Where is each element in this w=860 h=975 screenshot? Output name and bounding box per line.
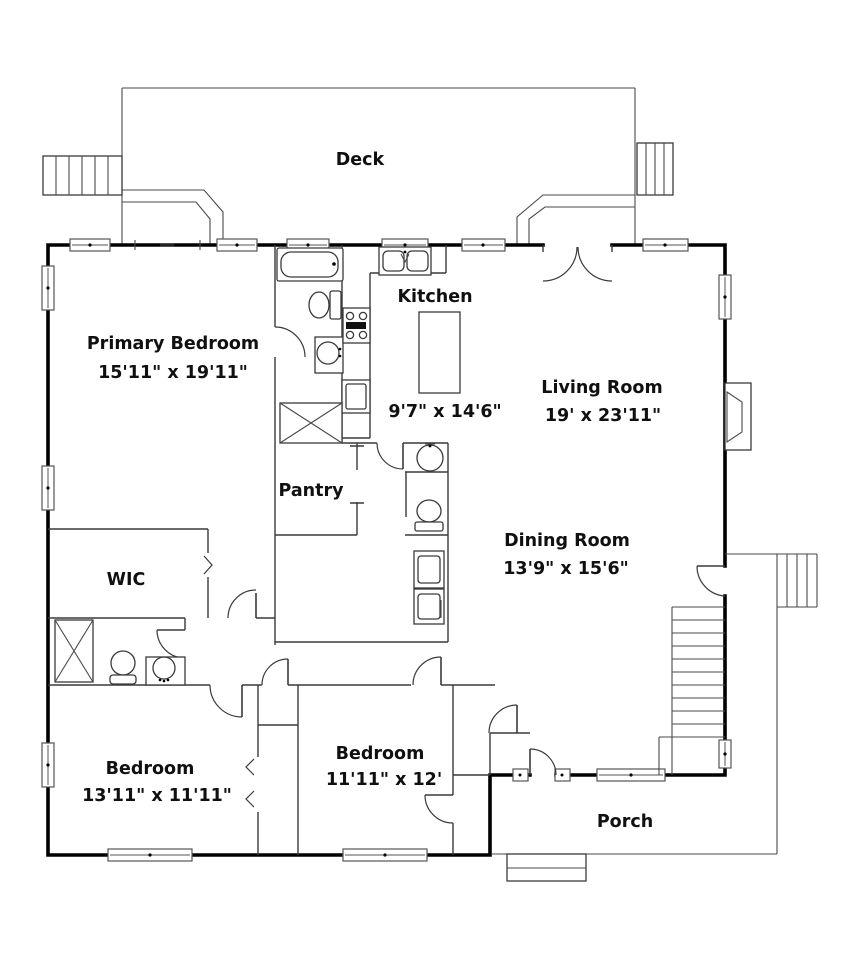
- room-label-porch: Porch: [597, 812, 653, 832]
- room-label-primary-bedroom: Primary Bedroom: [87, 334, 259, 354]
- deck-stairs-right-icon: [637, 143, 673, 195]
- kitchen-fixtures: [342, 247, 460, 413]
- toilet-icon: [415, 500, 443, 531]
- window-icon: [217, 239, 257, 251]
- deck-stairs-left-icon: [43, 156, 122, 195]
- window-icon: [343, 849, 427, 861]
- window-icon: [70, 239, 110, 251]
- toilet-icon: [309, 291, 341, 319]
- door-icon: [377, 443, 403, 469]
- floor-plan-page: Deck Primary Bedroom 15'11" x 19'11" Kit…: [0, 0, 860, 975]
- dishwasher-icon: [342, 380, 370, 413]
- porch-steps-icon: [507, 854, 586, 881]
- sliding-door-icon: [246, 759, 254, 807]
- door-icon: [262, 659, 288, 685]
- bathtub-icon: [277, 248, 343, 281]
- room-dims-kitchen: 9'7" x 14'6": [388, 402, 501, 422]
- window-icon: [42, 266, 54, 310]
- interior-stairs-icon: [659, 607, 725, 775]
- room-dims-primary-bedroom: 15'11" x 19'11": [98, 363, 248, 383]
- porch-outline: [492, 554, 817, 881]
- exterior-stairs-icon: [777, 554, 807, 607]
- room-label-dining-room: Dining Room: [504, 531, 630, 551]
- window-icon: [462, 239, 505, 251]
- room-dims-bedroom-2: 11'11" x 12': [326, 770, 442, 790]
- door-icon: [697, 566, 725, 596]
- window-icon: [643, 239, 688, 251]
- deck-railing: [122, 190, 635, 245]
- toilet-icon: [110, 651, 136, 684]
- sink-icon: [146, 657, 185, 685]
- closet-and-pantry: [280, 403, 342, 443]
- room-label-bedroom-2: Bedroom: [336, 744, 425, 764]
- sliding-door-icon: [204, 556, 212, 574]
- shower-icon: [55, 620, 93, 682]
- stove-icon: [343, 308, 370, 343]
- room-label-wic: WIC: [107, 570, 146, 590]
- room-dims-bedroom-1: 13'11" x 11'11": [82, 786, 232, 806]
- room-label-kitchen: Kitchen: [397, 287, 472, 307]
- window-icon: [513, 769, 528, 781]
- primary-bath-fixtures: [277, 248, 343, 373]
- room-label-living-room: Living Room: [541, 378, 662, 398]
- sink-icon: [315, 337, 343, 373]
- door-icon: [489, 705, 517, 733]
- window-icon: [108, 849, 192, 861]
- kitchen-island-icon: [419, 312, 460, 393]
- room-label-bedroom-1: Bedroom: [106, 759, 195, 779]
- room-dims-dining-room: 13'9" x 15'6": [503, 559, 628, 579]
- kitchen-sink-icon: [379, 247, 431, 275]
- fireplace-icon: [725, 383, 751, 450]
- linen-closet-icon: [280, 403, 342, 443]
- door-icon: [228, 590, 256, 618]
- sink-icon: [417, 444, 443, 471]
- room-label-deck: Deck: [336, 150, 385, 170]
- room-dims-living-room: 19' x 23'11": [545, 406, 661, 426]
- door-icon: [157, 630, 185, 658]
- window-icon: [555, 769, 570, 781]
- washer-dryer-icon: [414, 551, 444, 624]
- half-bath-fixtures: [414, 444, 444, 624]
- window-icon: [719, 740, 731, 768]
- room-label-pantry: Pantry: [278, 481, 344, 501]
- window-icon: [42, 743, 54, 787]
- floor-plan: Deck Primary Bedroom 15'11" x 19'11" Kit…: [0, 0, 860, 975]
- window-icon: [719, 275, 731, 319]
- door-icon: [425, 795, 453, 823]
- room-labels: Deck Primary Bedroom 15'11" x 19'11" Kit…: [82, 150, 663, 832]
- door-icon: [413, 657, 441, 685]
- door-icon: [210, 685, 242, 717]
- door-icon: [275, 327, 305, 357]
- window-icon: [597, 769, 665, 781]
- window-icon: [42, 466, 54, 510]
- french-door-icon: [543, 245, 612, 281]
- door-icon: [530, 749, 556, 775]
